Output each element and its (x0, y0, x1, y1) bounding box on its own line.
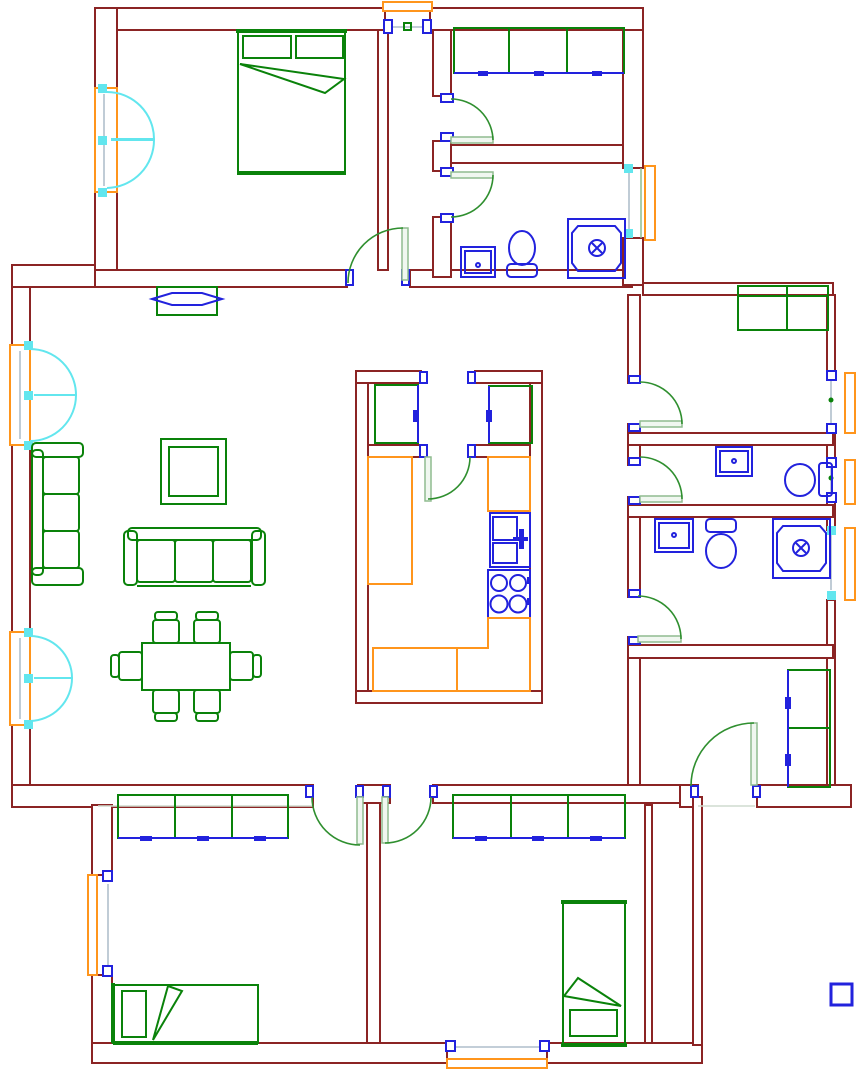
door-wc (629, 457, 682, 504)
window-bathroom-top (624, 164, 655, 240)
kitchen-sink (490, 513, 530, 567)
kitchen-counter-left (368, 457, 412, 584)
window-living-room-lower (10, 628, 72, 729)
shower-bathroom-2 (773, 519, 830, 578)
storage-cabinet (785, 670, 830, 787)
window-living-room-upper (10, 341, 76, 450)
sink-bathroom-2 (655, 519, 693, 552)
kitchen-cabinet-left (375, 385, 419, 443)
kitchen-cabinet-right (486, 386, 532, 443)
sofa-vertical (32, 443, 83, 585)
double-bed (236, 31, 347, 174)
tv-console (152, 287, 222, 315)
door-kitchen (420, 372, 475, 501)
wardrobe-closet-room (454, 28, 624, 76)
window-master-bedroom (95, 84, 154, 197)
door-bathroom-top (441, 168, 493, 222)
floor-plan-drawing (0, 0, 860, 1072)
door-bedroom-2 (306, 786, 363, 845)
window-bathroom-2 (827, 526, 855, 600)
kitchen-counter-right (488, 457, 530, 511)
sink-wc (716, 447, 752, 476)
kitchen-stove (488, 570, 531, 618)
door-closet-room (441, 94, 493, 143)
door-bathroom-2 (629, 590, 681, 644)
legend-blue-square (831, 984, 852, 1005)
floor-plan-canvas (0, 0, 860, 1072)
main-entrance (383, 2, 432, 33)
toilet-bathroom-2 (706, 519, 736, 568)
window-bedroom-2 (88, 871, 112, 976)
sink-bathroom-top (461, 247, 495, 277)
toilet-wc (785, 463, 832, 496)
coffee-table (161, 439, 226, 504)
single-bed-bedroom-2 (113, 983, 258, 1043)
kitchen-counter-bottom (373, 618, 530, 691)
door-bedroom-3 (382, 786, 437, 843)
window-bedroom-3 (446, 1041, 549, 1068)
sofa-horizontal (124, 528, 265, 586)
single-bed-bedroom-3 (561, 902, 627, 1045)
door-storage-room (691, 723, 760, 797)
door-study-room (629, 376, 682, 431)
dining-table (111, 612, 261, 721)
window-study-room (827, 371, 855, 433)
